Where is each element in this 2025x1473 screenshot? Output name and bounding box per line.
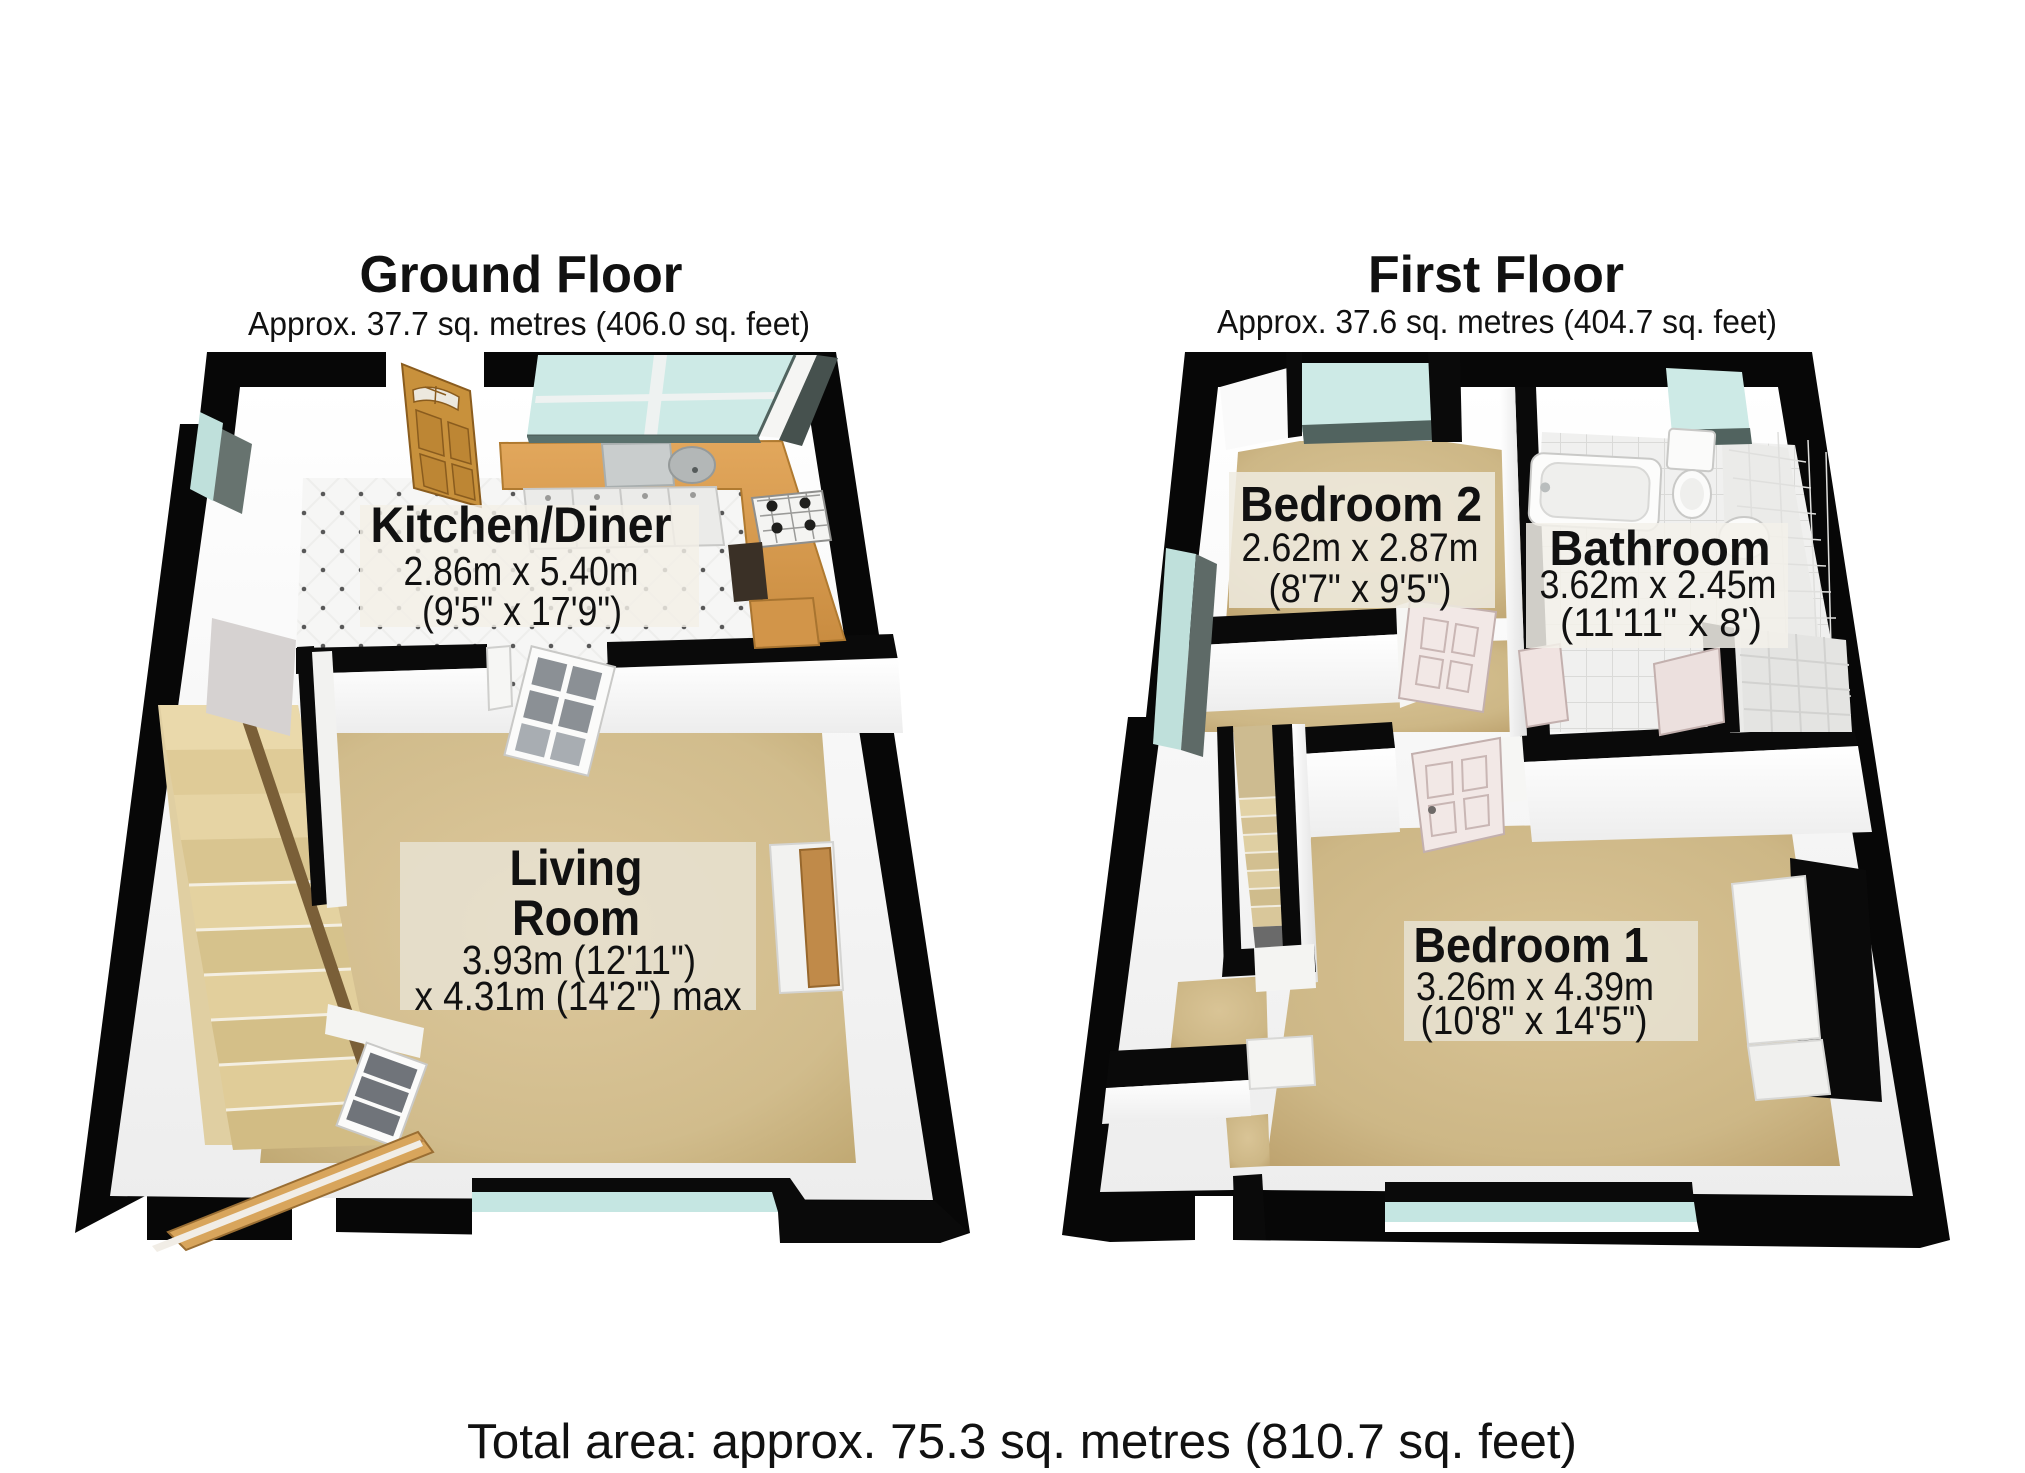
svg-text:First Floor: First Floor bbox=[1368, 246, 1624, 304]
svg-text:Approx. 37.7 sq. metres (406.0: Approx. 37.7 sq. metres (406.0 sq. feet) bbox=[248, 305, 810, 342]
svg-text:(11'11" x 8'): (11'11" x 8') bbox=[1560, 601, 1762, 645]
svg-text:x 4.31m (14'2") max: x 4.31m (14'2") max bbox=[415, 973, 742, 1019]
svg-text:Approx. 37.6 sq. metres (404.7: Approx. 37.6 sq. metres (404.7 sq. feet) bbox=[1217, 303, 1777, 340]
svg-text:Total area: approx. 75.3 sq. m: Total area: approx. 75.3 sq. metres (810… bbox=[467, 1415, 1577, 1469]
svg-text:2.62m x 2.87m: 2.62m x 2.87m bbox=[1242, 526, 1479, 570]
svg-text:Kitchen/Diner: Kitchen/Diner bbox=[371, 497, 672, 553]
svg-text:(8'7" x 9'5"): (8'7" x 9'5") bbox=[1269, 567, 1452, 611]
svg-text:Bedroom 2: Bedroom 2 bbox=[1240, 478, 1482, 532]
svg-text:(10'8" x 14'5"): (10'8" x 14'5") bbox=[1421, 999, 1648, 1043]
svg-text:(9'5" x 17'9"): (9'5" x 17'9") bbox=[422, 588, 622, 634]
svg-text:Ground Floor: Ground Floor bbox=[360, 246, 683, 304]
svg-text:Living: Living bbox=[510, 840, 643, 896]
